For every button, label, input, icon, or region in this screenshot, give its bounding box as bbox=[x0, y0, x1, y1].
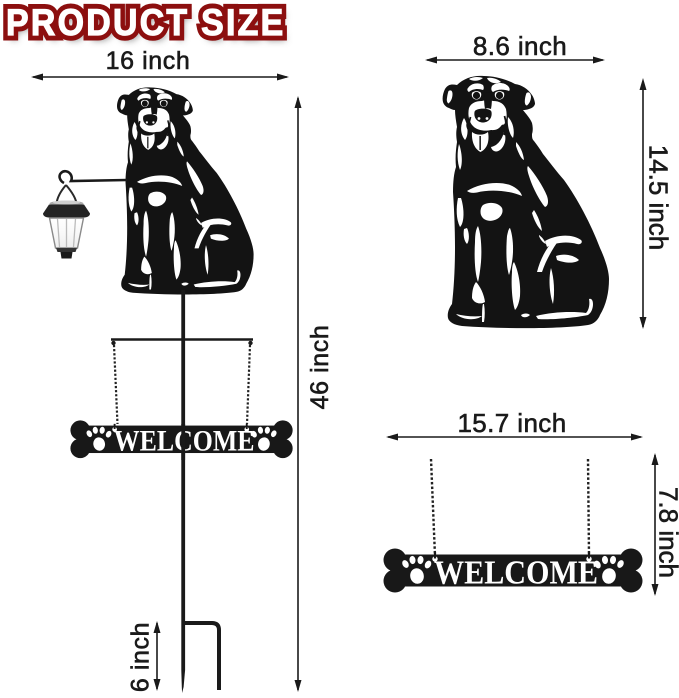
svg-text:6 inch: 6 inch bbox=[127, 622, 155, 692]
svg-text:14.5 inch: 14.5 inch bbox=[644, 145, 674, 251]
svg-text:16 inch: 16 inch bbox=[106, 47, 191, 75]
svg-text:15.7 inch: 15.7 inch bbox=[457, 408, 566, 438]
svg-text:8.6 inch: 8.6 inch bbox=[473, 31, 567, 61]
svg-text:46 inch: 46 inch bbox=[306, 325, 334, 410]
svg-text:7.8 inch: 7.8 inch bbox=[654, 487, 679, 578]
